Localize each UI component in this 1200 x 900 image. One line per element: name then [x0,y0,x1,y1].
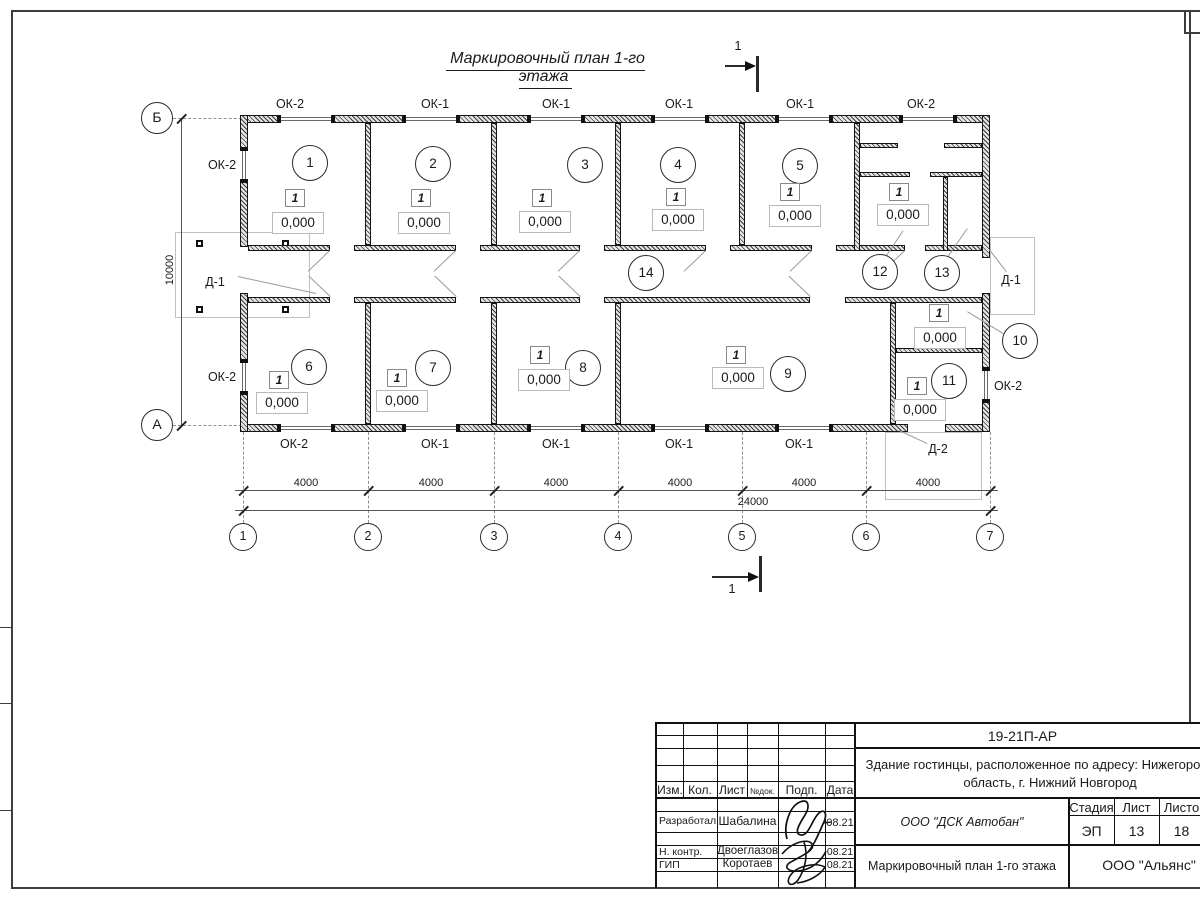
elevation-mark: 0,000 [769,205,821,227]
exterior-wall [982,293,990,368]
elevation-mark: 0,000 [256,392,308,414]
window-label: ОК-2 [986,379,1030,393]
floor-type-mark: 1 [907,377,927,395]
exterior-wall [708,115,776,123]
window-label: ОК-1 [657,437,701,451]
interior-wall [248,297,330,303]
window-glazing [403,426,459,427]
elevation-mark: 0,000 [712,367,764,389]
window-jamb [652,424,655,432]
elevation-mark: 0,000 [877,204,929,226]
interior-wall [354,245,456,251]
axis-circle: А [141,409,173,441]
leader-line [788,275,811,297]
window-jamb [456,424,459,432]
stamp-org1: ООО "ДСК Автобан" [855,815,1069,829]
window-jamb [528,115,531,123]
window-glazing [776,120,832,121]
window-jamb [652,115,655,123]
interior-wall [860,172,910,177]
window-label: ОК-1 [778,97,822,111]
window-glazing [278,426,334,427]
floor-type-mark: 1 [285,189,305,207]
dim-total-label: 24000 [731,496,775,508]
floor-type-mark: 1 [780,183,800,201]
exterior-wall [240,394,248,432]
window-label: ОК-2 [268,97,312,111]
interior-wall [491,303,497,424]
dim-label: 4000 [660,477,700,489]
dim-label: 4000 [908,477,948,489]
window-glazing [652,426,708,427]
axis-circle: 3 [480,523,508,551]
stamp-stage-label: Стадия [1069,800,1114,815]
dim-line [235,510,998,511]
window-glazing [528,426,584,427]
floor-type-mark: 1 [532,189,552,207]
stamp-col-ndok: №док. [747,786,778,796]
floor-type-mark: 1 [726,346,746,364]
window-glazing [984,368,985,402]
elevation-mark: 0,000 [914,327,966,349]
stamp-col-kol: Кол. [684,783,716,797]
room-number-circle: 3 [567,147,603,183]
exterior-wall [240,115,248,148]
window-glazing [900,120,956,121]
exterior-wall [982,402,990,432]
window-jamb [456,115,459,123]
interior-wall [604,297,810,303]
leader-line [557,250,580,272]
window-jamb [403,424,406,432]
window-jamb [776,424,779,432]
axis-circle: 5 [728,523,756,551]
window-jamb [829,115,832,123]
interior-wall [730,245,812,251]
interior-wall [615,123,621,245]
interior-wall [480,245,580,251]
elevation-mark: 0,000 [272,212,324,234]
window-jamb [331,115,334,123]
dim-line [181,118,182,425]
room-number-circle: 2 [415,146,451,182]
room-number-circle: 14 [628,255,664,291]
room-number-circle: 4 [660,147,696,183]
leader-line [433,250,456,272]
interior-wall [860,143,898,148]
window-label: ОК-2 [272,437,316,451]
stamp-sheet-value: 13 [1114,823,1159,839]
exterior-wall [334,115,403,123]
stamp-sheets-value: 18 [1159,823,1200,839]
room-number-circle: 8 [565,350,601,386]
window-jamb [705,424,708,432]
dim-label: 4000 [286,477,326,489]
room-number-circle: 9 [770,356,806,392]
interior-wall [943,177,948,251]
axis-circle: 2 [354,523,382,551]
leader-line [789,250,812,272]
window-glazing [652,429,708,430]
window-jamb [581,424,584,432]
stamp-name-2: Двоеглазов [717,845,778,857]
window-glazing [403,120,459,121]
leader-line [308,275,331,297]
elevation-mark: 0,000 [519,211,571,233]
window-glazing [776,117,832,118]
stamp-col-list: Лист [717,783,747,797]
window-jamb [240,148,248,151]
room-number-circle: 6 [291,349,327,385]
interior-wall [365,123,371,245]
stamp-col-podp: Подп. [778,783,825,797]
elevation-mark: 0,000 [518,369,570,391]
window-label: ОК-1 [534,437,578,451]
window-jamb [240,360,248,363]
floor-type-mark: 1 [411,189,431,207]
window-jamb [982,399,990,402]
window-jamb [953,115,956,123]
window-label: ОК-1 [413,437,457,451]
window-jamb [900,115,903,123]
stamp-code: 19-21П-АР [855,728,1190,744]
leader-line [683,250,706,272]
room-number-circle: 7 [415,350,451,386]
axis-circle: 4 [604,523,632,551]
room-number-circle: 12 [862,254,898,290]
door-label: Д-1 [193,275,237,289]
exterior-wall [240,293,248,360]
window-glazing [776,429,832,430]
stamp-drawing-name: Маркировочный план 1-го этажа [855,859,1069,873]
exterior-wall [982,115,990,258]
stamp-sheet-label: Лист [1114,800,1159,815]
interior-wall [930,172,982,177]
stamp-name-1: Шабалина [717,814,778,828]
exterior-wall [459,115,528,123]
window-jamb [581,115,584,123]
axis-circle: Б [141,102,173,134]
drawing-sheet: Маркировочный план 1-го этажа 1 1 ОК-2ОК… [0,0,1200,900]
window-glazing [528,120,584,121]
window-jamb [528,424,531,432]
window-label: ОК-1 [534,97,578,111]
leader-line [558,275,581,297]
room-number-circle: 1 [292,145,328,181]
window-glazing [776,426,832,427]
window-label: ОК-2 [200,370,244,384]
window-jamb [705,115,708,123]
interior-wall [615,303,621,424]
window-jamb [982,368,990,371]
axis-circle: 6 [852,523,880,551]
axis-circle: 1 [229,523,257,551]
room-number-circle: 5 [782,148,818,184]
window-glazing [278,120,334,121]
floor-type-mark: 1 [269,371,289,389]
window-glazing [278,429,334,430]
stamp-role-1: Разработал [659,815,717,827]
window-jamb [331,424,334,432]
dim-label: 4000 [536,477,576,489]
exterior-wall [584,115,652,123]
signature-2 [777,834,833,886]
exterior-wall [832,424,908,432]
stamp-object-line2: область, г. Нижний Новгород [855,775,1200,790]
exterior-wall [334,424,403,432]
stamp-name-3: Коротаев [717,858,778,870]
stamp-role-2: Н. контр. [659,846,717,858]
stamp-object-line1: Здание гостинцы, расположенное по адресу… [855,757,1200,772]
stamp-col-izm: Изм. [655,783,685,797]
window-label: ОК-1 [777,437,821,451]
floor-type-mark: 1 [889,183,909,201]
floor-type-mark: 1 [530,346,550,364]
window-glazing [245,148,246,182]
porch-column [282,306,289,313]
exterior-wall [584,424,652,432]
interior-wall [845,297,982,303]
window-jamb [776,115,779,123]
window-glazing [245,360,246,394]
window-jamb [829,424,832,432]
window-glazing [900,117,956,118]
window-label: ОК-2 [200,158,244,172]
dim-label: 4000 [411,477,451,489]
window-label: ОК-1 [413,97,457,111]
interior-wall [365,303,371,424]
interior-wall [491,123,497,245]
window-jamb [403,115,406,123]
window-jamb [240,179,248,182]
leader-line [947,228,968,258]
interior-wall [944,143,982,148]
room-number-circle: 10 [1002,323,1038,359]
stamp-role-3: ГИП [659,859,717,871]
leader-line [307,250,330,272]
window-glazing [403,429,459,430]
window-label: ОК-1 [657,97,701,111]
leader-line [434,275,457,297]
floor-type-mark: 1 [929,304,949,322]
elevation-mark: 0,000 [376,390,428,412]
porch-column [196,240,203,247]
exterior-wall [832,115,900,123]
window-glazing [652,120,708,121]
stamp-stage-value: ЭП [1069,823,1114,839]
window-glazing [528,117,584,118]
interior-wall [739,123,745,245]
exterior-wall [708,424,776,432]
window-jamb [278,115,281,123]
stamp-col-data: Дата [825,783,855,797]
elevation-mark: 0,000 [652,209,704,231]
floor-type-mark: 1 [387,369,407,387]
window-jamb [240,391,248,394]
window-jamb [278,424,281,432]
door-label: Д-2 [916,442,960,456]
window-glazing [528,429,584,430]
axis-circle: 7 [976,523,1004,551]
room-number-circle: 11 [931,363,967,399]
elevation-mark: 0,000 [398,212,450,234]
window-glazing [652,117,708,118]
window-glazing [278,117,334,118]
window-label: ОК-2 [899,97,943,111]
stamp-org2: ООО "Альянс" [1069,857,1200,873]
window-glazing [403,117,459,118]
interior-wall [836,245,905,251]
dim-label: 4000 [784,477,824,489]
interior-wall [248,245,330,251]
stamp-sheets-label: Листов [1159,800,1200,815]
interior-wall [604,245,706,251]
porch-column [196,306,203,313]
exterior-wall [459,424,528,432]
dim-vertical-label: 10000 [164,248,176,292]
room-number-circle: 13 [924,255,960,291]
floor-type-mark: 1 [666,188,686,206]
elevation-mark: 0,000 [894,399,946,421]
door-label: Д-1 [989,273,1033,287]
exterior-wall [240,182,248,247]
